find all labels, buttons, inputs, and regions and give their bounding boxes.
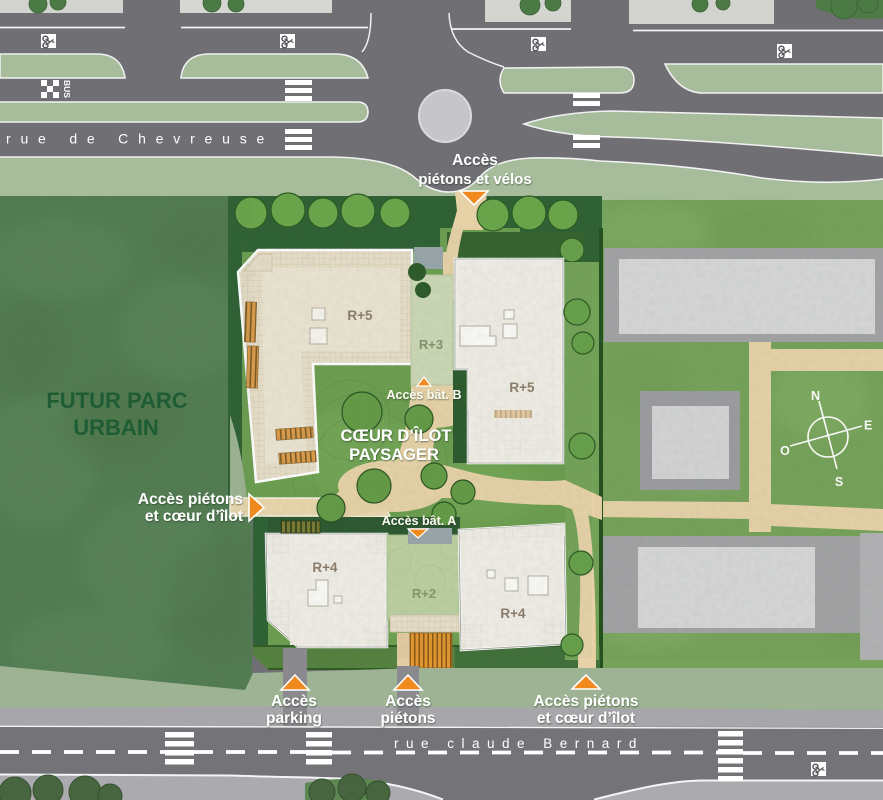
svg-text:rue de Chevreuse: rue de Chevreuse bbox=[6, 131, 274, 147]
svg-text:et cœur d’îlot: et cœur d’îlot bbox=[145, 508, 243, 525]
svg-text:et cœur d’îlot: et cœur d’îlot bbox=[537, 710, 635, 727]
svg-text:CŒUR D’ÎLOT: CŒUR D’ÎLOT bbox=[341, 426, 452, 445]
svg-text:PAYSAGER: PAYSAGER bbox=[349, 446, 439, 464]
svg-text:Accès: Accès bbox=[452, 152, 498, 169]
svg-text:Accès piétons: Accès piétons bbox=[138, 491, 243, 508]
svg-text:BUS: BUS bbox=[62, 80, 72, 98]
svg-text:piétons et vélos: piétons et vélos bbox=[418, 171, 531, 188]
svg-text:rue claude Bernard: rue claude Bernard bbox=[394, 736, 644, 751]
svg-text:Accès bât. B: Accès bât. B bbox=[386, 388, 461, 402]
svg-text:Accès: Accès bbox=[271, 693, 317, 710]
svg-text:Accès bât. A: Accès bât. A bbox=[382, 514, 457, 528]
svg-text:Accès piétons: Accès piétons bbox=[533, 693, 638, 710]
svg-text:Accès: Accès bbox=[385, 693, 431, 710]
svg-text:piétons: piétons bbox=[380, 710, 435, 727]
svg-text:parking: parking bbox=[266, 710, 322, 727]
